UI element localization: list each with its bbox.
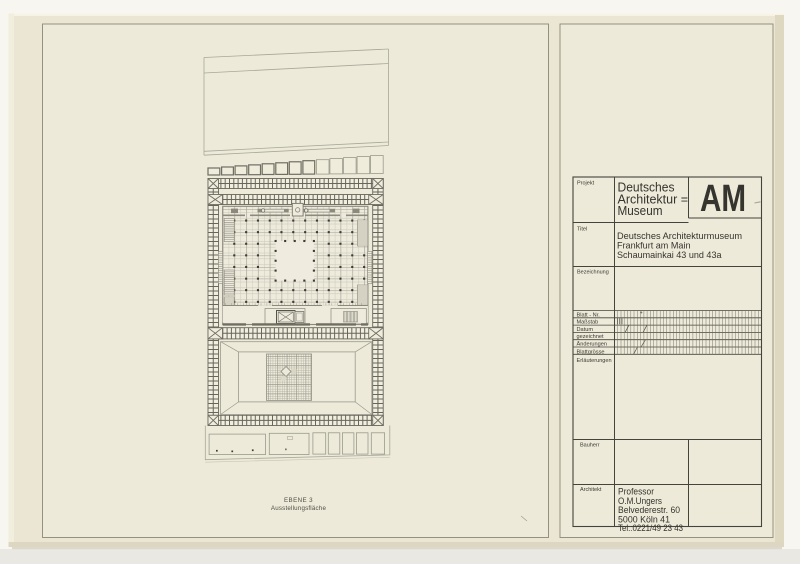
svg-text:Museum: Museum <box>618 204 663 218</box>
svg-text:Maßstab: Maßstab <box>577 320 599 326</box>
svg-text:Datum: Datum <box>577 327 594 333</box>
svg-text:Schaumainkai 43 und 43a: Schaumainkai 43 und 43a <box>617 250 722 260</box>
svg-text:Tel.:0221/49 23 43: Tel.:0221/49 23 43 <box>618 523 683 533</box>
svg-text:gezeichnet: gezeichnet <box>577 334 605 340</box>
svg-text:Deutsches Architekturmuseum: Deutsches Architekturmuseum <box>617 231 742 241</box>
svg-text:Architekt: Architekt <box>580 487 602 493</box>
svg-text:AM: AM <box>700 178 746 220</box>
svg-text:Ausstellungsfläche: Ausstellungsfläche <box>271 505 327 512</box>
svg-text:EBENE 3: EBENE 3 <box>284 497 313 504</box>
svg-text:Änderungen: Änderungen <box>577 341 607 348</box>
svg-text:Bezeichnung: Bezeichnung <box>577 270 609 276</box>
svg-text:Titel: Titel <box>577 227 587 233</box>
svg-text:Blatt - Nr.: Blatt - Nr. <box>577 312 601 318</box>
svg-text:Projekt: Projekt <box>577 181 595 187</box>
svg-text:Frankfurt am Main: Frankfurt am Main <box>617 241 691 251</box>
svg-text:Bauherr: Bauherr <box>580 443 600 449</box>
svg-text:Blattgrösse: Blattgrösse <box>577 350 605 356</box>
svg-text:Erläuterungen: Erläuterungen <box>577 358 612 364</box>
